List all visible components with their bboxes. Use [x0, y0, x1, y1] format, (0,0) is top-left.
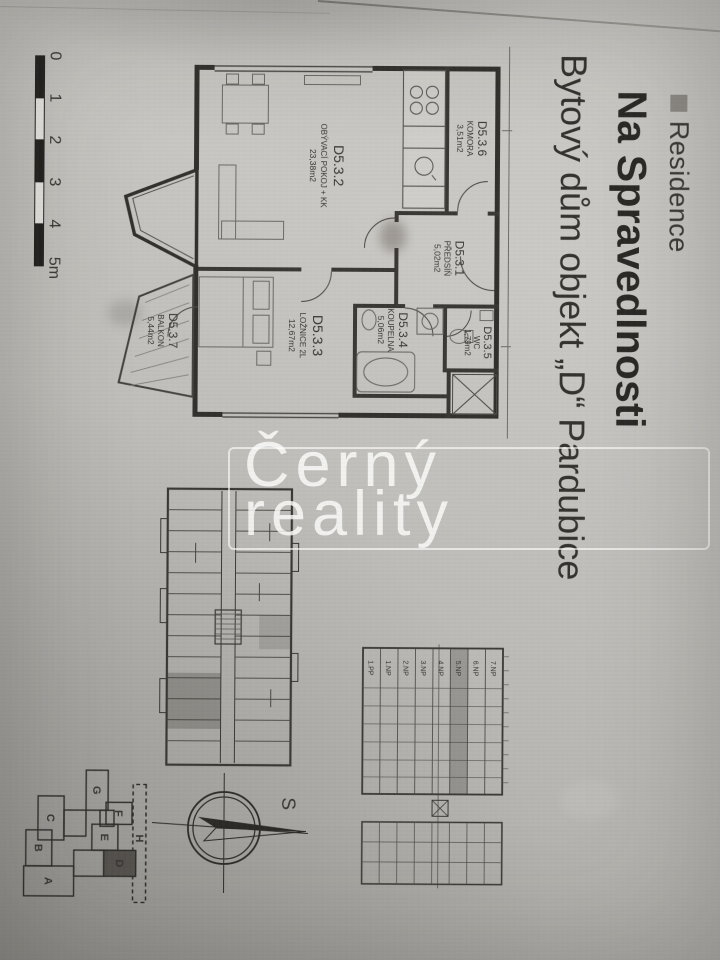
- floor-overview-plan: [156, 483, 300, 772]
- room-area: 23,38m2: [308, 149, 318, 182]
- room-name: KOMORA: [465, 121, 474, 157]
- section-axis-line: [438, 644, 439, 888]
- room-id: D5.3.6: [475, 121, 489, 157]
- building-h-outline: [132, 784, 146, 902]
- kitchen-counter: [403, 70, 446, 208]
- brand-square-icon: [670, 95, 687, 112]
- room-name: WC: [472, 336, 481, 350]
- building-label-f: F: [112, 810, 124, 817]
- scale-bar: 0 1 2 3 4 5m: [15, 48, 66, 288]
- smudge-mark: [380, 220, 406, 252]
- building-label-g: G: [90, 786, 102, 795]
- brand-name: Residence: [662, 121, 694, 253]
- building-label-h: H: [133, 834, 145, 842]
- room-area: 5,44m2: [146, 316, 156, 345]
- floor-label: 1.NP: [384, 660, 391, 676]
- window-lines: [212, 66, 372, 418]
- room-area: 5,06m2: [376, 316, 386, 345]
- room-name: LOŽNICE 2L: [298, 313, 307, 359]
- shaded-core-cell: [259, 615, 291, 649]
- floor-label: 1.PP: [366, 660, 373, 676]
- building-label-a: A: [42, 877, 54, 885]
- scale-label: 5m: [45, 257, 62, 279]
- floor-labels: 7.NP 6.NP 5.NP 4.NP 3.NP 2.NP 1.NP 1.PP: [366, 660, 496, 677]
- room-name: BALKON: [156, 314, 165, 347]
- scale-label: 3: [46, 177, 63, 186]
- floor-label: 5.NP: [454, 661, 461, 677]
- room-area: 12,67m2: [287, 319, 297, 352]
- room-id: D5.3.2: [331, 145, 347, 187]
- floor-label: 7.NP: [489, 661, 496, 677]
- highlighted-unit-cell: [167, 673, 221, 729]
- scale-label: 2: [46, 135, 63, 144]
- scale-label: 0: [47, 51, 64, 60]
- site-plan: H G F E D C B A: [15, 768, 148, 905]
- scale-label: 4: [46, 219, 63, 228]
- smudge-mark: [108, 300, 142, 326]
- room-area: 3,51m2: [455, 124, 465, 153]
- room-id: D5.3.1: [452, 241, 466, 277]
- compass-north-arrow: S: [146, 771, 315, 898]
- corridor-context-lines: [500, 47, 512, 439]
- building-label-c: C: [44, 814, 56, 822]
- project-title: Na Spravedlnosti: [605, 90, 655, 580]
- floor-label: 3.NP: [419, 660, 426, 676]
- building-section-diagram: 7.NP 6.NP 5.NP 4.NP 3.NP 2.NP 1.NP 1.PP: [354, 644, 513, 889]
- floor-label: 6.NP: [471, 661, 478, 677]
- bay-window-inner-line: [132, 175, 194, 258]
- north-label: S: [277, 797, 298, 810]
- scale-labels: 0 1 2 3 4 5m: [45, 51, 63, 279]
- room-name: OBÝVACÍ POKOJ + KK: [319, 124, 329, 209]
- floor-label: 2.NP: [401, 660, 408, 676]
- room-name: KOUPELNA: [386, 308, 395, 352]
- scale-segments: [34, 56, 44, 266]
- room-area: 1,79m2: [463, 329, 472, 356]
- room-name: PŘEDSÍŇ: [442, 241, 451, 277]
- building-label-d: D: [113, 859, 125, 867]
- photo-of-floorplan-document: Residence Na Spravedlnosti Bytový dům ob…: [0, 0, 720, 960]
- document-header: Residence Na Spravedlnosti Bytový dům ob…: [549, 54, 694, 581]
- building-label-e: E: [98, 834, 110, 841]
- light-reflection: [560, 780, 620, 820]
- bay-window: [125, 169, 197, 266]
- rotated-paper-document: Residence Na Spravedlnosti Bytový dům ob…: [0, 0, 719, 960]
- room-area: 5,02m2: [432, 244, 442, 273]
- installation-shaft: [452, 374, 496, 414]
- room-id: D5.3.3: [310, 315, 326, 357]
- room-id: D5.3.4: [396, 312, 410, 348]
- bedroom-furniture: [199, 277, 274, 365]
- apartment-floor-plan: D5.3.6 KOMORA 3,51m2 D5.3.1 PŘEDSÍŇ 5,02…: [110, 44, 512, 438]
- building-subtitle: Bytový dům objekt „D“ Pardubice: [549, 54, 594, 580]
- floor-label: 4.NP: [436, 661, 443, 677]
- brand-row: Residence: [660, 95, 694, 581]
- building-label-b: B: [32, 844, 44, 852]
- room-id: D5.3.7: [166, 313, 180, 349]
- room-id: D5.3.5: [481, 326, 493, 358]
- scale-label: 1: [46, 93, 63, 102]
